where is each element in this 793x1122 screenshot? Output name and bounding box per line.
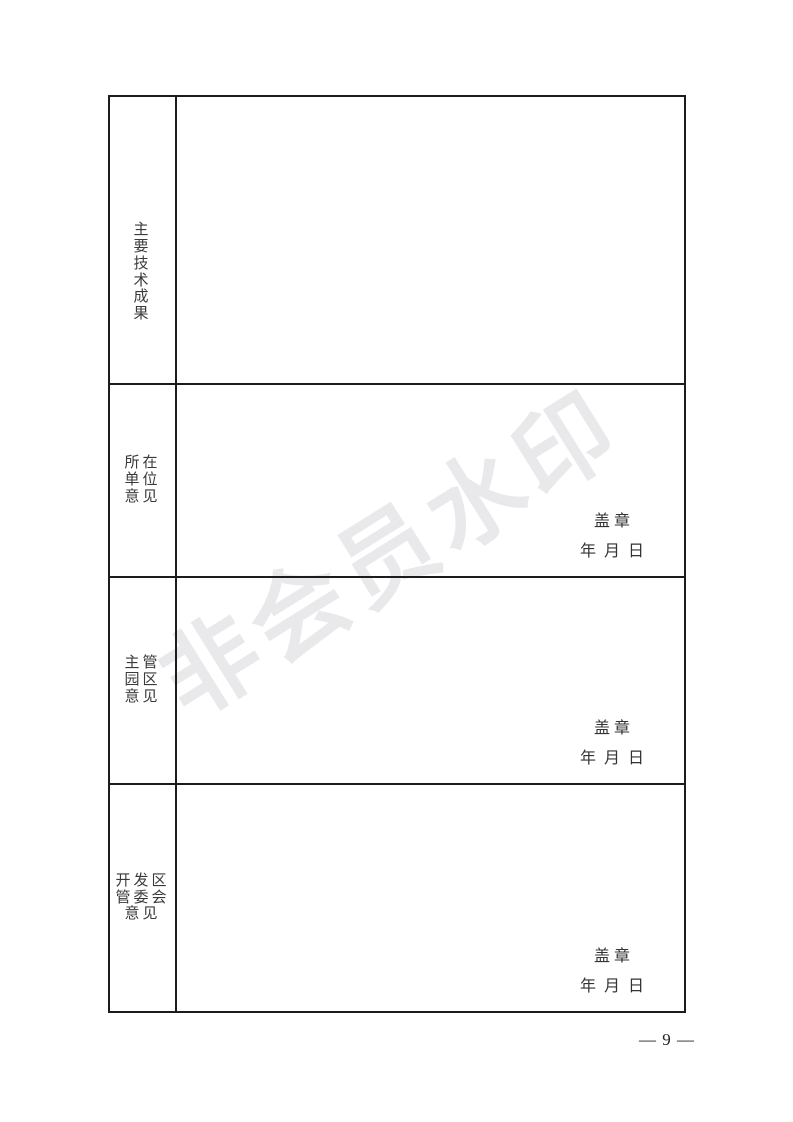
signature-block: 盖 章 年 月 日 [580, 718, 644, 770]
signature-block: 盖 章 年 月 日 [580, 946, 644, 998]
table-row-main-tech-achievements: 主 要 技 术 成 果 [110, 97, 684, 385]
seal-label: 盖 章 [580, 946, 644, 968]
host-unit-opinion-cell: 盖 章 年 月 日 [177, 385, 684, 576]
approval-form-table: 主 要 技 术 成 果 所在 单位 意见 盖 章 年 月 日 主管 园区 意见 … [108, 95, 686, 1013]
date-label: 年 月 日 [580, 976, 644, 998]
table-row-supervising-park-opinion: 主管 园区 意见 盖 章 年 月 日 [110, 578, 684, 785]
row-label-devzone-committee-opinion: 开发区 管委会 意见 [110, 785, 177, 1011]
date-label: 年 月 日 [580, 748, 644, 770]
row-label-text: 所在 单位 意见 [124, 455, 160, 505]
page-number: — 9 — [639, 1030, 695, 1050]
row-label-main-tech-achievements: 主 要 技 术 成 果 [110, 97, 177, 383]
row-label-supervising-park-opinion: 主管 园区 意见 [110, 578, 177, 783]
devzone-committee-opinion-cell: 盖 章 年 月 日 [177, 785, 684, 1011]
row-label-text: 主管 园区 意见 [124, 655, 160, 705]
main-tech-achievements-cell [177, 97, 684, 383]
table-row-host-unit-opinion: 所在 单位 意见 盖 章 年 月 日 [110, 385, 684, 578]
row-label-text: 开发区 管委会 意见 [115, 873, 169, 923]
date-label: 年 月 日 [580, 541, 644, 563]
supervising-park-opinion-cell: 盖 章 年 月 日 [177, 578, 684, 783]
seal-label: 盖 章 [580, 511, 644, 533]
table-row-devzone-committee-opinion: 开发区 管委会 意见 盖 章 年 月 日 [110, 785, 684, 1011]
signature-block: 盖 章 年 月 日 [580, 511, 644, 563]
row-label-host-unit-opinion: 所在 单位 意见 [110, 385, 177, 576]
row-label-text: 主 要 技 术 成 果 [133, 222, 151, 323]
seal-label: 盖 章 [580, 718, 644, 740]
